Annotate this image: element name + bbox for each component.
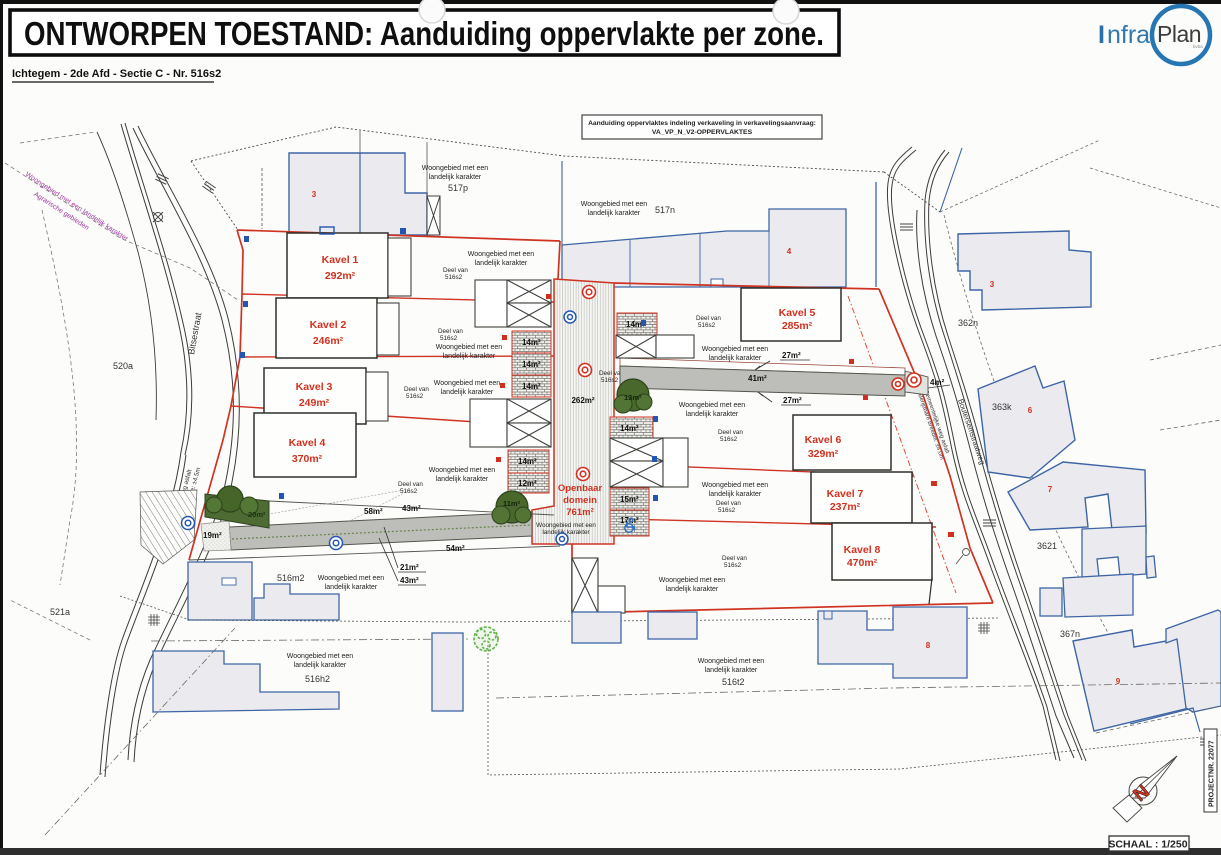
svg-text:3: 3 <box>990 280 995 289</box>
svg-text:363k: 363k <box>992 402 1012 412</box>
svg-text:landelijk karakter: landelijk karakter <box>441 389 494 396</box>
svg-text:362n: 362n <box>958 318 978 328</box>
svg-text:14m²: 14m² <box>620 424 639 433</box>
svg-text:516s2: 516s2 <box>400 488 418 495</box>
svg-text:Aanduiding oppervlaktes indeli: Aanduiding oppervlaktes indeling verkave… <box>588 120 816 127</box>
svg-text:Kavel 4: Kavel 4 <box>289 437 326 449</box>
svg-text:43m²: 43m² <box>400 576 419 585</box>
svg-text:Woongebied met een: Woongebied met een <box>581 201 648 208</box>
svg-text:landelijk karakter: landelijk karakter <box>709 491 762 498</box>
svg-text:237m²: 237m² <box>830 501 861 513</box>
svg-text:Deel van: Deel van <box>718 429 743 436</box>
svg-text:12m²: 12m² <box>518 479 537 488</box>
svg-text:516h2: 516h2 <box>305 674 330 684</box>
svg-text:landelijk karakter: landelijk karakter <box>705 667 758 674</box>
svg-text:landelijk karakter: landelijk karakter <box>325 584 378 591</box>
svg-text:Woongebied met een: Woongebied met een <box>679 402 746 409</box>
svg-text:11m²: 11m² <box>503 499 521 508</box>
svg-text:516t2: 516t2 <box>722 677 745 687</box>
svg-text:Woongebied met een: Woongebied met een <box>702 482 769 489</box>
svg-text:58m²: 58m² <box>364 507 383 516</box>
svg-text:516s2: 516s2 <box>445 274 463 281</box>
svg-text:landelijk karakter: landelijk karakter <box>666 586 719 593</box>
svg-text:Woongebied met een: Woongebied met een <box>698 658 765 665</box>
svg-text:517n: 517n <box>655 205 675 215</box>
svg-text:19m²: 19m² <box>203 531 222 540</box>
svg-text:20m²: 20m² <box>248 510 266 519</box>
svg-text:516s2: 516s2 <box>601 377 619 384</box>
svg-text:Deel van: Deel van <box>722 555 747 562</box>
svg-text:Woongebied met een: Woongebied met een <box>468 251 535 258</box>
svg-text:landelijk karakter: landelijk karakter <box>443 353 496 360</box>
svg-text:516s2: 516s2 <box>406 393 424 400</box>
svg-text:landelijk karakter: landelijk karakter <box>588 210 641 217</box>
svg-text:Deel van: Deel van <box>438 328 463 335</box>
svg-text:Kavel 2: Kavel 2 <box>310 319 347 331</box>
svg-text:Woongebied met een: Woongebied met een <box>536 522 596 529</box>
svg-text:landelijk karakter: landelijk karakter <box>475 260 528 267</box>
svg-text:521a: 521a <box>50 607 70 617</box>
svg-text:15m²: 15m² <box>620 495 639 504</box>
svg-text:I: I <box>1098 21 1105 49</box>
svg-text:13m²: 13m² <box>624 393 642 402</box>
svg-text:292m²: 292m² <box>325 270 356 282</box>
svg-text:Openbaar: Openbaar <box>558 483 603 494</box>
svg-text:Ichtegem - 2de Afd - Sectie C: Ichtegem - 2de Afd - Sectie C - Nr. 516s… <box>12 68 221 80</box>
svg-text:landelijk karakter: landelijk karakter <box>429 174 482 181</box>
svg-text:329m²: 329m² <box>808 448 839 460</box>
svg-text:761m²: 761m² <box>566 507 593 518</box>
svg-text:SCHAAL : 1/250: SCHAAL : 1/250 <box>1108 839 1187 851</box>
svg-text:VA_VP_N_V2-OPPERVLAKTES: VA_VP_N_V2-OPPERVLAKTES <box>652 129 753 136</box>
svg-text:7: 7 <box>1048 485 1053 494</box>
svg-text:516s2: 516s2 <box>440 335 458 342</box>
svg-text:43m²: 43m² <box>402 504 421 513</box>
svg-text:4: 4 <box>787 247 792 256</box>
svg-text:Woongebied met een: Woongebied met een <box>422 165 489 172</box>
svg-text:3621: 3621 <box>1037 541 1057 551</box>
svg-text:367n: 367n <box>1060 629 1080 639</box>
svg-text:Deel van: Deel van <box>716 500 741 507</box>
svg-text:520a: 520a <box>113 361 133 371</box>
svg-text:516s2: 516s2 <box>698 322 716 329</box>
svg-text:27m²: 27m² <box>782 351 801 360</box>
svg-text:Kavel 6: Kavel 6 <box>805 434 842 446</box>
svg-text:516s2: 516s2 <box>724 562 742 569</box>
svg-text:landelijk karakter: landelijk karakter <box>294 662 347 669</box>
svg-text:Kavel 3: Kavel 3 <box>296 381 333 393</box>
svg-text:Woongebied met een: Woongebied met een <box>429 467 496 474</box>
svg-text:domein: domein <box>563 495 597 506</box>
svg-text:Deel van: Deel van <box>398 481 423 488</box>
svg-text:Kavel 8: Kavel 8 <box>844 544 881 556</box>
svg-text:470m²: 470m² <box>847 557 878 569</box>
svg-text:14m²: 14m² <box>518 457 537 466</box>
svg-text:516s2: 516s2 <box>718 507 736 514</box>
svg-text:Deel van: Deel van <box>404 386 429 393</box>
svg-text:Woongebied met een: Woongebied met een <box>318 575 385 582</box>
svg-text:14m²: 14m² <box>522 382 541 391</box>
svg-text:landelijk karakter: landelijk karakter <box>686 411 739 418</box>
svg-text:249m²: 249m² <box>299 397 330 409</box>
svg-text:Kavel 1: Kavel 1 <box>322 254 359 266</box>
svg-text:landelijk karakter: landelijk karakter <box>436 476 489 483</box>
svg-text:Woongebied met een: Woongebied met een <box>659 577 726 584</box>
svg-text:41m²: 41m² <box>748 374 767 383</box>
svg-text:nfra: nfra <box>1107 21 1150 49</box>
svg-text:Deel van: Deel van <box>696 315 721 322</box>
svg-text:516s2: 516s2 <box>720 436 738 443</box>
svg-text:246m²: 246m² <box>313 335 344 347</box>
svg-text:54m²: 54m² <box>446 544 465 553</box>
svg-text:3: 3 <box>312 190 317 199</box>
svg-text:516m2: 516m2 <box>277 573 305 583</box>
svg-text:PROJECTNR. 22077: PROJECTNR. 22077 <box>1209 740 1216 807</box>
svg-text:262m²: 262m² <box>571 396 594 405</box>
svg-text:370m²: 370m² <box>292 453 323 465</box>
svg-text:14m²: 14m² <box>522 338 541 347</box>
svg-text:285m²: 285m² <box>782 320 813 332</box>
svg-text:14m²: 14m² <box>522 360 541 369</box>
svg-text:Kavel 7: Kavel 7 <box>827 488 864 500</box>
svg-text:8: 8 <box>926 641 931 650</box>
svg-text:21m²: 21m² <box>400 563 419 572</box>
svg-text:Woongebied met een: Woongebied met een <box>436 344 503 351</box>
svg-text:Woongebied met een: Woongebied met een <box>434 380 501 387</box>
svg-text:Deel van: Deel van <box>443 267 468 274</box>
svg-text:27m²: 27m² <box>783 396 802 405</box>
svg-text:Woongebied met een: Woongebied met een <box>287 653 354 660</box>
svg-text:6: 6 <box>1028 406 1033 415</box>
svg-text:Woongebied met een: Woongebied met een <box>702 346 769 353</box>
svg-text:landelijk karakter: landelijk karakter <box>709 355 762 362</box>
svg-text:517p: 517p <box>448 183 468 193</box>
svg-text:Kavel 5: Kavel 5 <box>779 307 816 319</box>
svg-text:bvba: bvba <box>1193 44 1203 49</box>
